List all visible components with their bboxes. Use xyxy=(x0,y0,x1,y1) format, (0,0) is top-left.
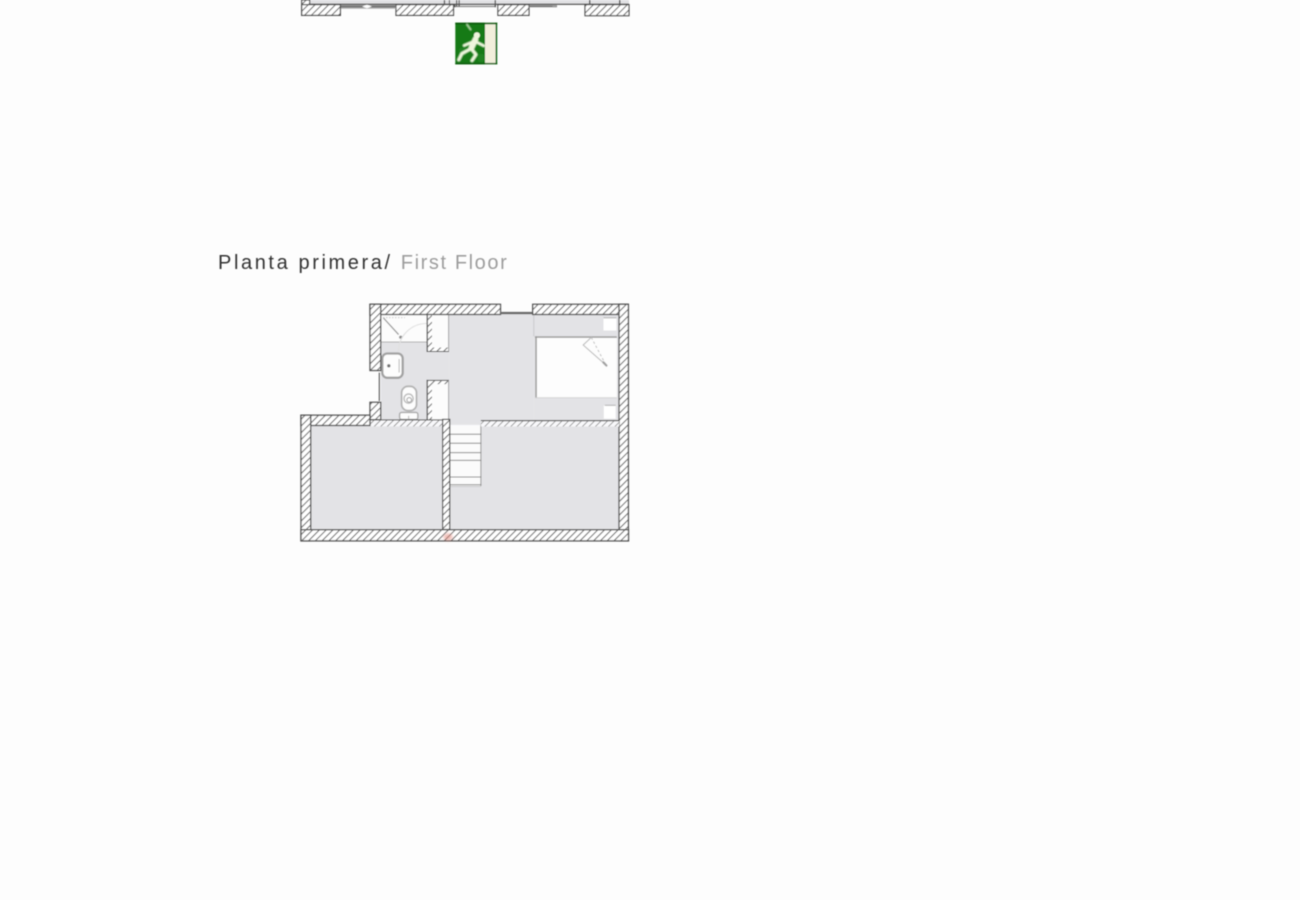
svg-text:Planta primera/ First Floor: Planta primera/ First Floor xyxy=(218,252,508,274)
